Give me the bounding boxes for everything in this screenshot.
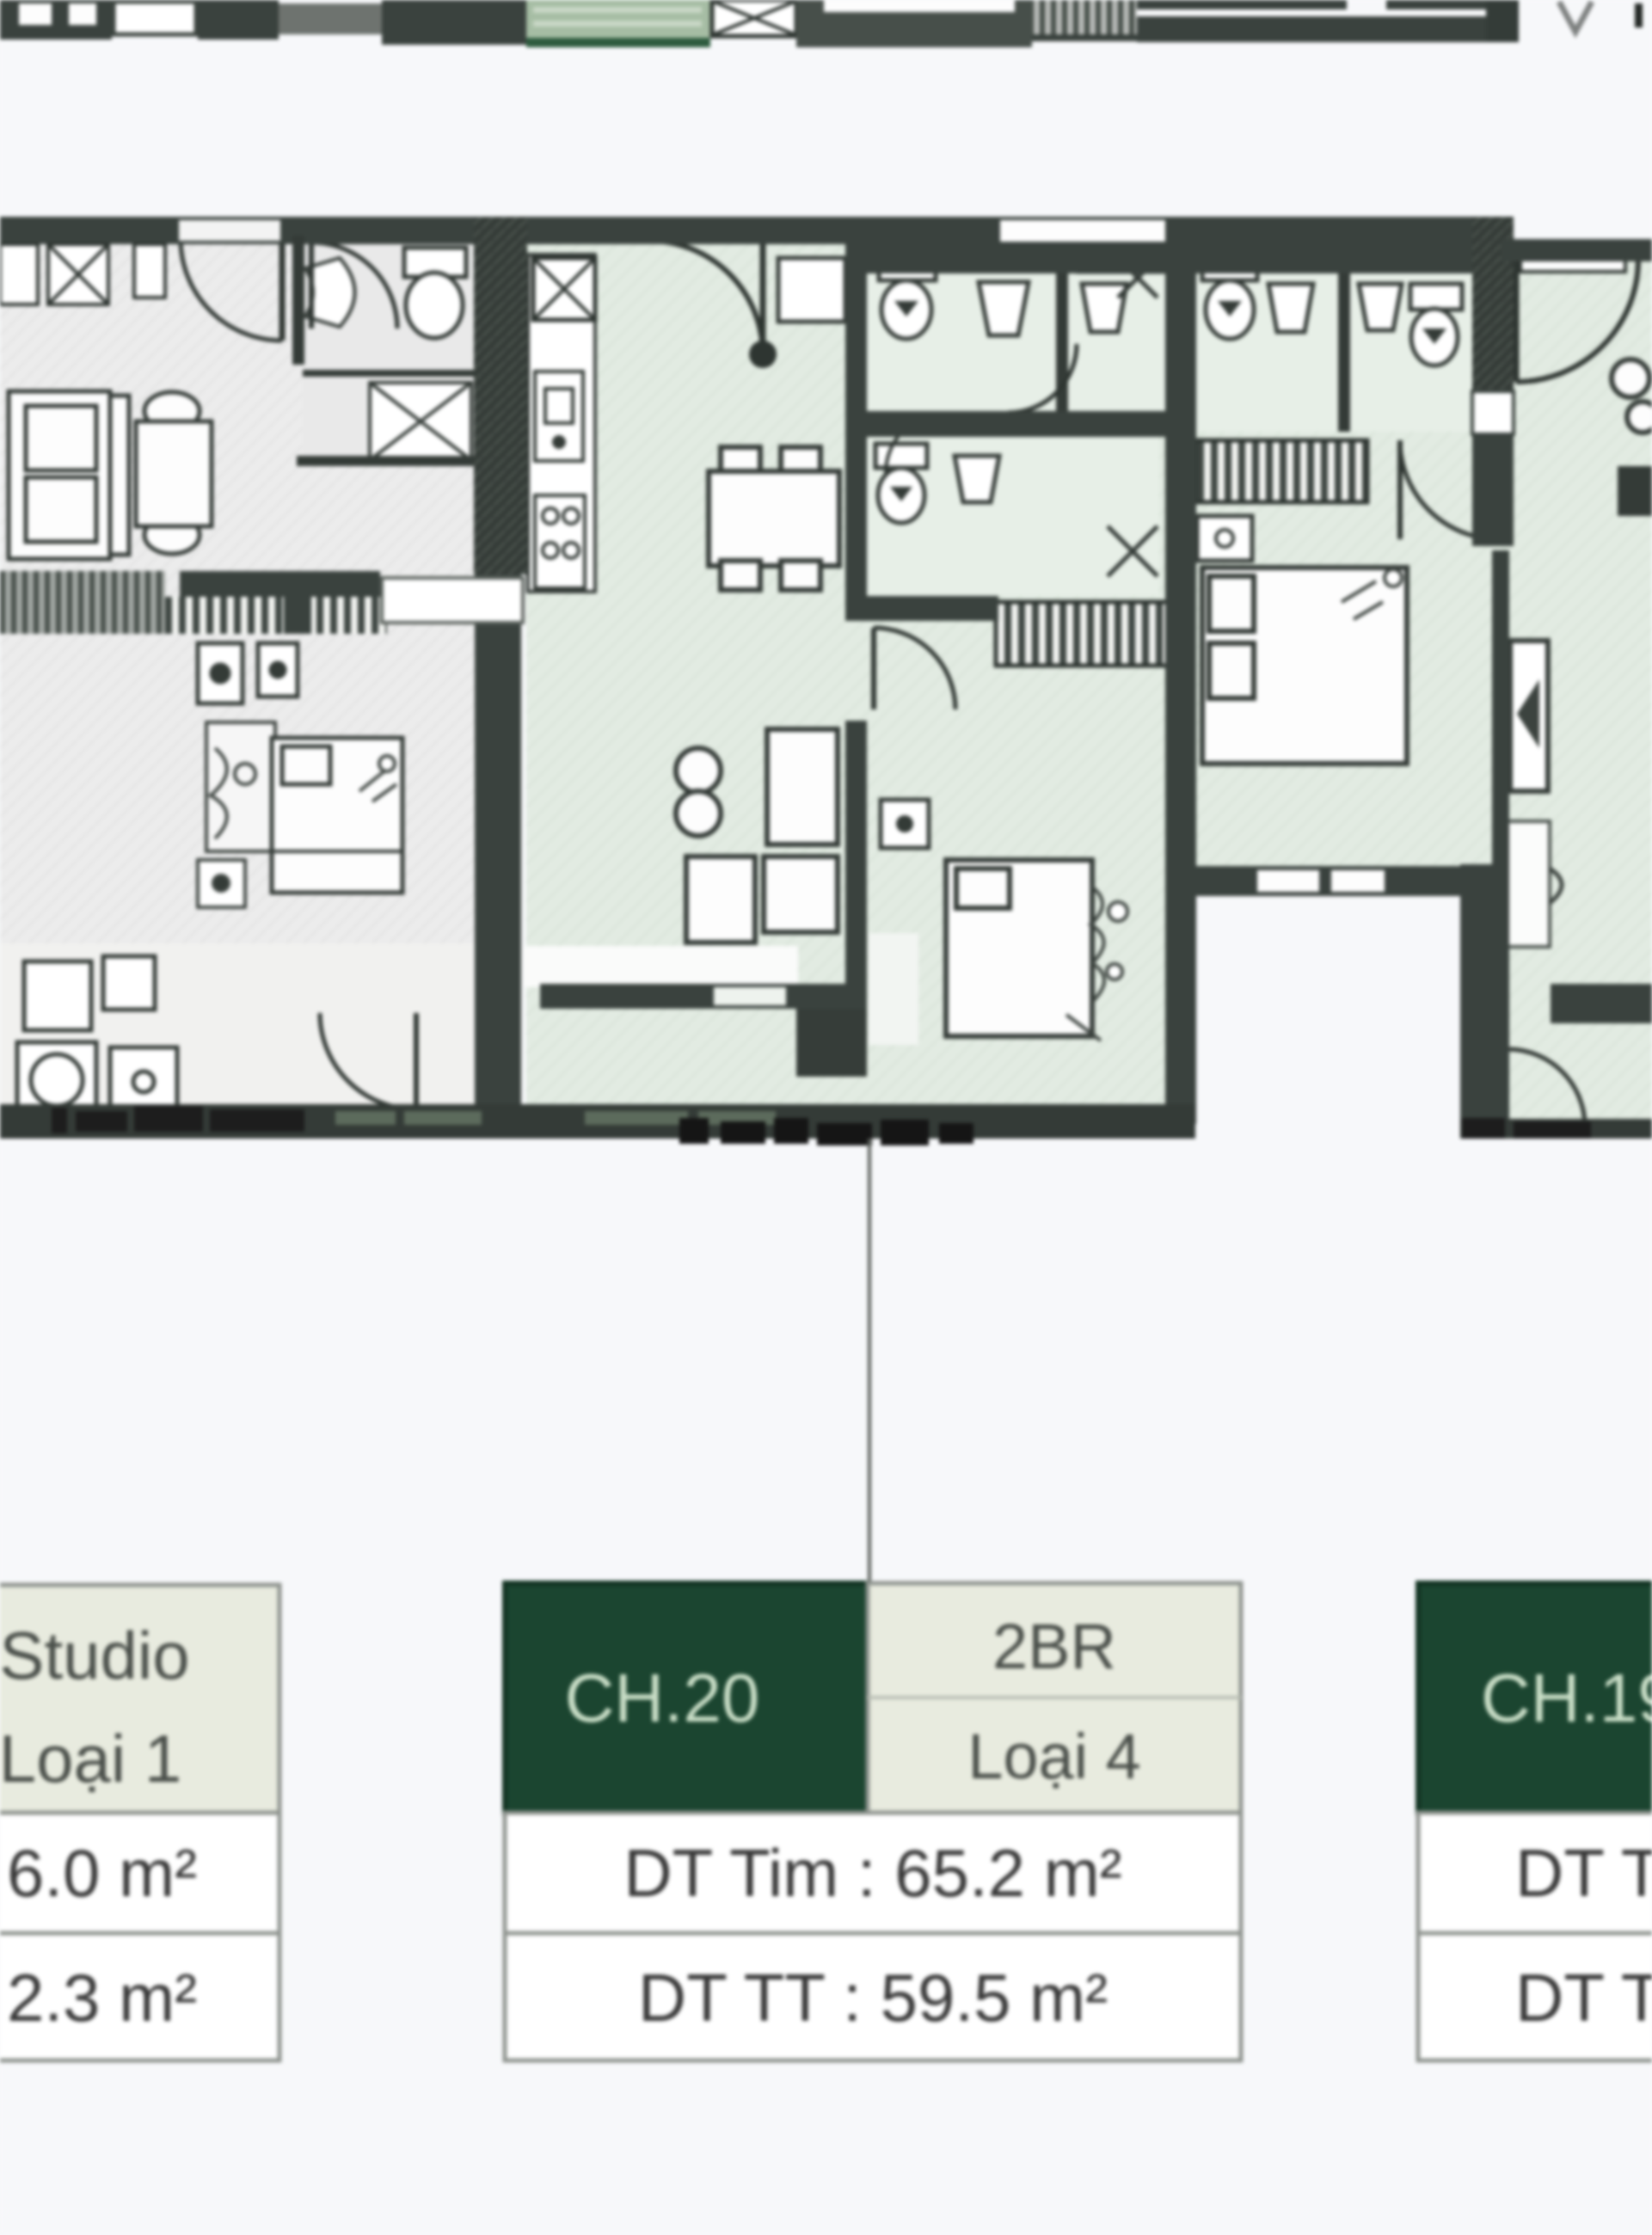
svg-text:DT Tim : 65.2 m²: DT Tim : 65.2 m² bbox=[623, 1835, 1121, 1911]
svg-text:Loại 1: Loại 1 bbox=[0, 1721, 181, 1796]
svg-text:DT TT : 5: DT TT : 5 bbox=[1515, 1960, 1652, 2035]
svg-text:DT TT : 59.5 m²: DT TT : 59.5 m² bbox=[638, 1960, 1108, 2035]
svg-text:2BR: 2BR bbox=[992, 1611, 1116, 1682]
svg-text:2.3 m²: 2.3 m² bbox=[7, 1960, 197, 2035]
svg-text:CH.19: CH.19 bbox=[1481, 1660, 1652, 1736]
svg-text:Studio: Studio bbox=[0, 1618, 190, 1693]
svg-text:CH.20: CH.20 bbox=[565, 1660, 760, 1736]
svg-text:DT Tim : 6: DT Tim : 6 bbox=[1515, 1835, 1652, 1911]
svg-text:6.0 m²: 6.0 m² bbox=[7, 1835, 197, 1911]
svg-text:Loại 4: Loại 4 bbox=[967, 1721, 1141, 1792]
